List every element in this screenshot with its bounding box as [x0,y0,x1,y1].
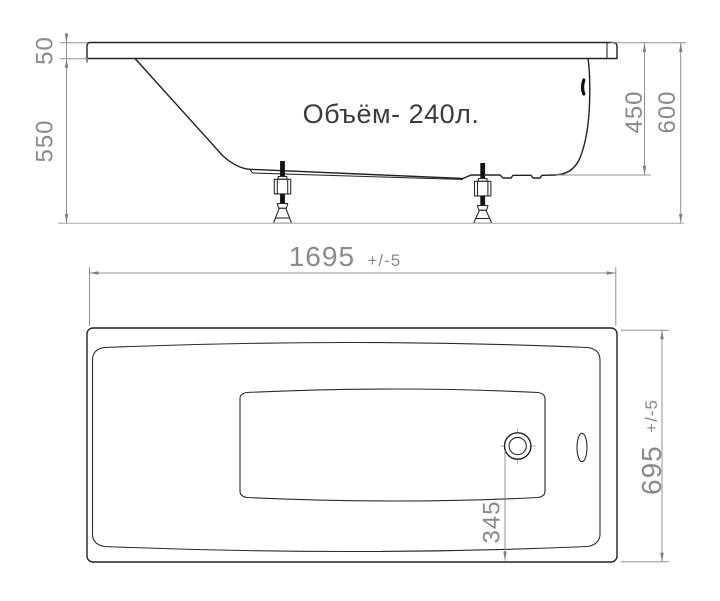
arrow-550-bottom [65,214,68,223]
arrow-600-top [679,43,682,52]
overflow-mark [583,80,584,94]
dim-left-chain: 50 550 [32,33,89,223]
dim-right-group: 450 600 [556,43,686,223]
arrow-length-right [607,271,616,275]
side-view: 50 550 450 600 Объём- 240л. [32,33,687,223]
rim-profile [87,43,617,59]
dim-width-value: 695 [636,445,667,495]
foot-left-rod-bottom [280,194,285,204]
foot-right [474,163,492,223]
foot-right-rod-top [480,163,485,179]
arrow-length-left [90,271,99,275]
arrow-50-top [65,34,68,43]
dim-inner-depth: 450 [621,90,648,133]
dim-length-group: 1695 +/-5 [90,241,616,326]
volume-label: Объём- 240л. [303,99,480,129]
drain-outer-circle [505,433,531,459]
dim-width-tolerance: +/-5 [642,399,661,433]
arrow-450-top [643,43,646,52]
dim-width-group: 695 +/-5 [621,330,669,561]
arrow-width-bottom [660,553,663,562]
dim-body-height: 550 [32,119,59,162]
plan-outer-edge [87,328,617,562]
foot-left-collar [277,204,288,209]
arrow-600-bottom [679,214,682,223]
foot-right-cone [474,210,492,223]
dim-length-text: 1695 +/-5 [289,241,402,272]
arrow-50-bottom [65,59,68,68]
arrow-width-top [660,330,663,339]
plan-view: 1695 +/-5 695 +/-5 345 [87,241,669,562]
arrow-450-bottom [643,166,646,175]
dim-drain-offset-text: 345 [479,500,506,543]
foot-left-rod-top [280,161,285,177]
foot-right-collar [477,206,488,211]
technical-drawing-page: 50 550 450 600 Объём- 240л. [0,0,720,601]
foot-left-cone [274,208,292,223]
dim-rim-thickness: 50 [32,36,59,65]
dim-total-height: 600 [654,90,681,133]
bathtub-drawing-svg: 50 550 450 600 Объём- 240л. [0,0,720,601]
dim-length-value: 1695 [289,241,355,272]
dim-length-tolerance: +/-5 [367,251,401,270]
foot-right-rod-bottom [480,196,485,206]
